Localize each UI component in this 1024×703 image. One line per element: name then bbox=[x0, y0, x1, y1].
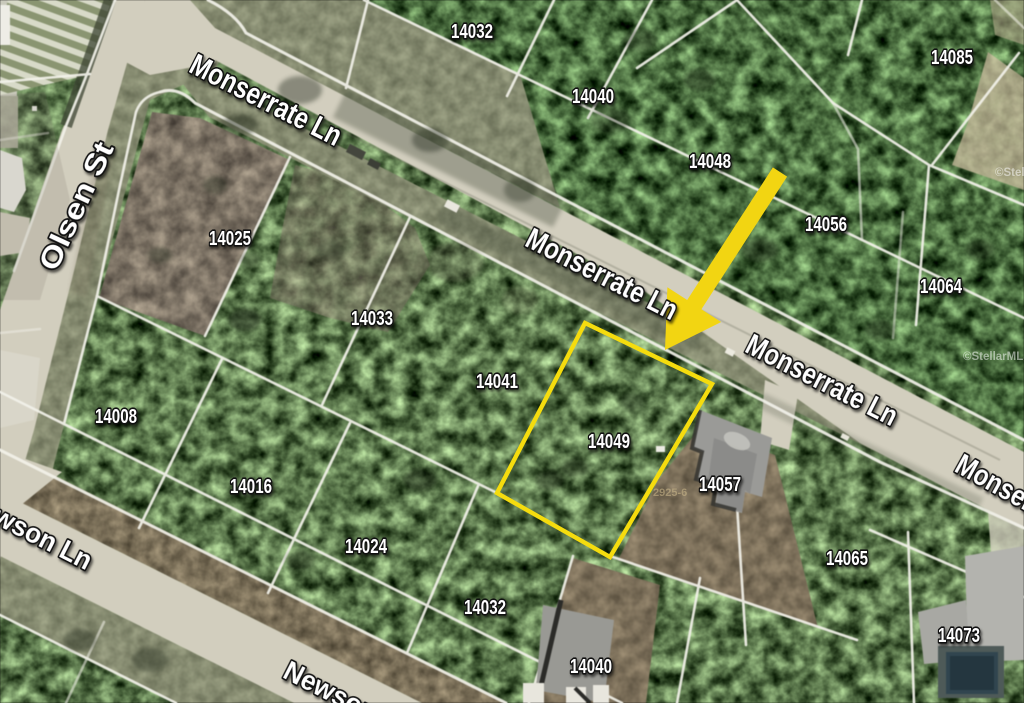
svg-text:14025: 14025 bbox=[209, 227, 251, 250]
svg-text:14032: 14032 bbox=[464, 596, 506, 619]
svg-text:14024: 14024 bbox=[345, 535, 387, 558]
svg-text:14040: 14040 bbox=[572, 85, 614, 108]
svg-text:14032: 14032 bbox=[451, 20, 493, 43]
svg-text:14064: 14064 bbox=[920, 275, 962, 298]
svg-text:©StellarMLS: ©StellarMLS bbox=[995, 167, 1024, 179]
svg-text:©StellarMLS: ©StellarMLS bbox=[963, 351, 1024, 363]
svg-text:2925-6: 2925-6 bbox=[653, 487, 687, 499]
svg-text:14073: 14073 bbox=[938, 624, 980, 647]
svg-text:14056: 14056 bbox=[805, 213, 847, 236]
svg-text:14085: 14085 bbox=[931, 46, 973, 69]
svg-text:14033: 14033 bbox=[351, 307, 393, 330]
svg-text:14040: 14040 bbox=[570, 655, 612, 678]
svg-text:14041: 14041 bbox=[476, 370, 518, 393]
svg-text:14049: 14049 bbox=[588, 430, 630, 453]
svg-text:14057: 14057 bbox=[699, 473, 741, 496]
svg-text:14016: 14016 bbox=[230, 475, 272, 498]
svg-text:14008: 14008 bbox=[95, 405, 137, 428]
svg-text:14048: 14048 bbox=[689, 150, 731, 173]
svg-text:14065: 14065 bbox=[826, 547, 868, 570]
